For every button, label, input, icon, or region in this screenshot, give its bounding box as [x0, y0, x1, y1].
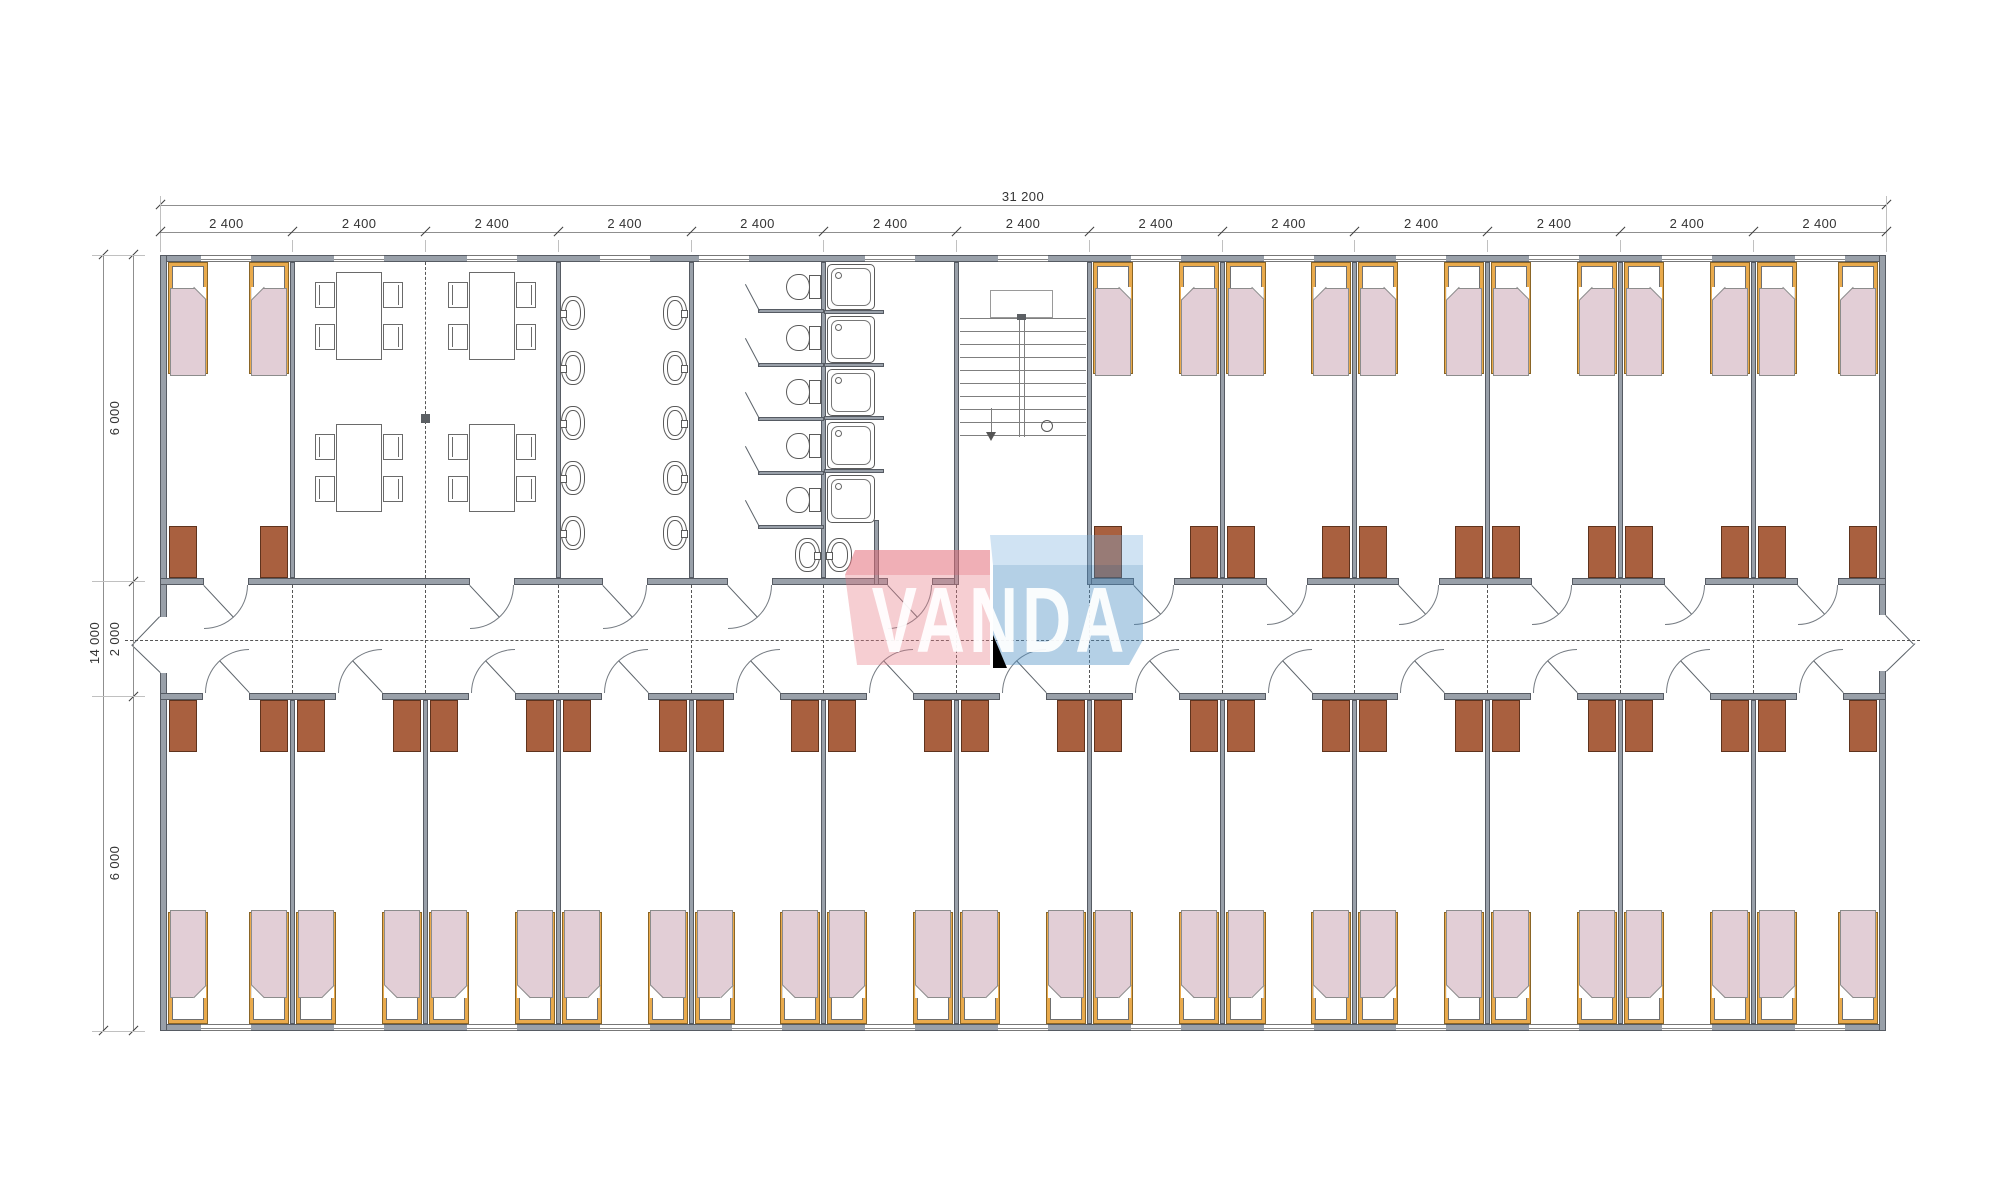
axis-line: [292, 585, 293, 693]
extension-line: [92, 255, 145, 256]
door-swing-arc: [1533, 649, 1577, 693]
bed-blanket: [1181, 288, 1217, 376]
door-swing-arc: [728, 585, 772, 629]
wardrobe: [1758, 526, 1786, 578]
wall: [758, 471, 824, 475]
door-leaf: [131, 644, 160, 673]
chair: [448, 324, 468, 350]
wall: [821, 700, 826, 1024]
dim-bay-label: 2 400: [1355, 217, 1488, 231]
axis-line: [1753, 585, 1754, 693]
window: [201, 1024, 251, 1031]
chair: [448, 434, 468, 460]
wall: [1444, 693, 1531, 700]
blanket-fold: [1313, 985, 1326, 998]
window: [1131, 255, 1181, 262]
sink: [795, 538, 820, 572]
blanket-fold: [1251, 985, 1264, 998]
extension-line: [691, 240, 692, 252]
sink: [663, 406, 687, 440]
wardrobe: [1094, 526, 1122, 578]
wall: [874, 520, 879, 585]
stair-divider-cap: [1017, 314, 1026, 320]
wall: [824, 416, 884, 420]
blanket-fold: [852, 985, 865, 998]
wall: [758, 309, 824, 313]
extension-line: [92, 696, 145, 697]
door-swing-arc: [1399, 585, 1439, 625]
wall: [1843, 693, 1886, 700]
bed-blanket: [170, 288, 206, 376]
wall: [1751, 262, 1756, 578]
sink: [561, 516, 585, 550]
bed-pillow: [1714, 996, 1746, 1020]
wall: [824, 363, 884, 367]
wardrobe: [1190, 700, 1218, 752]
bed-pillow: [699, 996, 731, 1020]
blanket-fold: [1048, 985, 1061, 998]
axis-line: [1222, 585, 1223, 693]
wardrobe: [791, 700, 819, 752]
toilet-tank: [809, 434, 821, 458]
axis-line: [691, 585, 692, 693]
extension-line: [1753, 240, 1754, 252]
sink: [561, 351, 585, 385]
toilet-tank: [809, 488, 821, 512]
blanket-fold: [1712, 287, 1725, 300]
axis-line: [956, 585, 957, 693]
door-swing-arc: [205, 649, 249, 693]
door-swing-arc: [338, 649, 382, 693]
wall: [1439, 578, 1532, 585]
door-swing-arc: [736, 649, 780, 693]
wall: [1220, 262, 1225, 578]
bed-pillow: [1448, 996, 1480, 1020]
bed-blanket: [1228, 288, 1264, 376]
window: [1264, 1024, 1314, 1031]
wall: [1751, 700, 1756, 1024]
blanket-fold: [384, 985, 397, 998]
axis-line: [1620, 585, 1621, 693]
stair-step: [960, 370, 1086, 371]
bed-pillow: [300, 996, 332, 1020]
door-swing-arc: [888, 585, 932, 629]
chair: [516, 282, 536, 308]
door-swing-arc: [1134, 585, 1174, 625]
sink: [827, 538, 852, 572]
window: [1131, 1024, 1181, 1031]
blanket-fold: [1313, 287, 1326, 300]
wardrobe: [1492, 700, 1520, 752]
window: [998, 1024, 1048, 1031]
window: [334, 255, 384, 262]
dimension-line: [160, 232, 1886, 233]
window: [600, 255, 650, 262]
window: [334, 1024, 384, 1031]
bed-pillow: [172, 996, 204, 1020]
blanket-fold: [193, 287, 206, 300]
wardrobe: [828, 700, 856, 752]
dimension-line: [103, 255, 104, 1031]
wardrobe: [1721, 700, 1749, 752]
dining-table: [336, 272, 382, 360]
axis-line: [823, 585, 824, 693]
extension-line: [1620, 240, 1621, 252]
wardrobe: [1322, 700, 1350, 752]
wall: [160, 578, 204, 585]
chair: [383, 476, 403, 502]
blanket-fold: [193, 985, 206, 998]
stair-column: [1041, 420, 1053, 432]
bed-pillow: [1315, 996, 1347, 1020]
bed-pillow: [652, 996, 684, 1020]
wardrobe: [1849, 700, 1877, 752]
toilet-tank: [809, 275, 821, 299]
toilet-bowl: [786, 487, 810, 513]
stair-step: [960, 422, 1086, 423]
blanket-fold: [1383, 287, 1396, 300]
chair: [383, 434, 403, 460]
window: [1396, 1024, 1446, 1031]
bed-pillow: [1097, 996, 1129, 1020]
stair-step: [960, 383, 1086, 384]
bed-blanket: [1360, 288, 1396, 376]
window: [699, 255, 749, 262]
shower-tray: [827, 369, 875, 416]
window: [600, 1024, 650, 1031]
bed-pillow: [1842, 996, 1874, 1020]
axis-line: [1487, 585, 1488, 693]
wall: [689, 262, 694, 578]
extension-line: [92, 1031, 145, 1032]
wall: [1572, 578, 1665, 585]
wall: [160, 693, 203, 700]
bed-blanket: [1759, 288, 1795, 376]
blanket-fold: [1251, 287, 1264, 300]
extension-line: [1354, 240, 1355, 252]
door-swing-arc: [204, 585, 248, 629]
door-leaf: [1886, 643, 1915, 672]
bed-pillow: [1050, 996, 1082, 1020]
chair: [516, 434, 536, 460]
wall: [249, 693, 336, 700]
window: [1529, 1024, 1579, 1031]
bed-pillow: [519, 996, 551, 1020]
blanket-fold: [1516, 985, 1529, 998]
blanket-fold: [985, 985, 998, 998]
door-opening: [160, 617, 167, 673]
blanket-fold: [1118, 287, 1131, 300]
blanket-fold: [251, 985, 264, 998]
wardrobe: [393, 700, 421, 752]
wall: [1618, 262, 1623, 578]
chair: [448, 282, 468, 308]
blanket-fold: [1383, 985, 1396, 998]
wall: [1307, 578, 1400, 585]
dim-overall-height: 14 000: [88, 606, 102, 680]
blanket-fold: [1181, 287, 1194, 300]
bed-pillow: [1628, 996, 1660, 1020]
stall-door-leaf: [745, 500, 760, 527]
sink: [561, 461, 585, 495]
bed-pillow: [964, 996, 996, 1020]
stall-door-leaf: [745, 446, 760, 473]
wardrobe: [1057, 700, 1085, 752]
sink: [561, 406, 585, 440]
wardrobe: [1455, 700, 1483, 752]
wardrobe: [260, 526, 288, 578]
wall: [648, 693, 735, 700]
blanket-fold: [915, 985, 928, 998]
door-swing-arc: [1400, 649, 1444, 693]
sink: [561, 296, 585, 330]
wall: [382, 693, 469, 700]
wardrobe: [563, 700, 591, 752]
chair: [383, 282, 403, 308]
wall: [824, 469, 884, 473]
bed-pillow: [1230, 996, 1262, 1020]
wall: [1220, 700, 1225, 1024]
sink: [663, 351, 687, 385]
blanket-fold: [1782, 985, 1795, 998]
blanket-fold: [1840, 287, 1853, 300]
blanket-fold: [1840, 985, 1853, 998]
dim-bay-label: 2 400: [558, 217, 691, 231]
door-swing-arc: [1268, 649, 1312, 693]
toilet-bowl: [786, 325, 810, 351]
chair: [516, 476, 536, 502]
blanket-fold: [1649, 287, 1662, 300]
bed-blanket: [1626, 288, 1662, 376]
window: [865, 255, 915, 262]
extension-line: [823, 240, 824, 252]
wall: [1352, 700, 1357, 1024]
wall: [248, 578, 470, 585]
axis-line: [1089, 585, 1090, 693]
blanket-fold: [720, 985, 733, 998]
wardrobe: [1849, 526, 1877, 578]
window: [467, 255, 517, 262]
wardrobe: [1227, 526, 1255, 578]
door-swing-arc: [1532, 585, 1572, 625]
stair-step: [960, 357, 1086, 358]
shower-tray: [827, 264, 875, 310]
extension-line: [1089, 240, 1090, 252]
wall: [1087, 578, 1134, 585]
wall: [913, 693, 1000, 700]
door-swing-arc: [1002, 649, 1046, 693]
blanket-fold: [587, 985, 600, 998]
axis-line: [558, 585, 559, 693]
chair: [383, 324, 403, 350]
blanket-fold: [454, 985, 467, 998]
door-swing-arc: [1135, 649, 1179, 693]
wall: [647, 578, 728, 585]
chair: [315, 476, 335, 502]
sink: [663, 461, 687, 495]
wall: [556, 700, 561, 1024]
dim-seg-6000-top: 6 000: [108, 381, 122, 455]
wardrobe: [1322, 526, 1350, 578]
wardrobe: [169, 526, 197, 578]
wall: [290, 700, 295, 1024]
bed-pillow: [253, 996, 285, 1020]
wardrobe: [924, 700, 952, 752]
dim-bay-label: 2 400: [1222, 217, 1355, 231]
door-leaf: [131, 616, 160, 645]
stair-step: [960, 435, 1086, 436]
wardrobe: [1359, 700, 1387, 752]
wall: [1174, 578, 1267, 585]
stair-step: [960, 396, 1086, 397]
wardrobe: [1492, 526, 1520, 578]
door-swing-arc: [1666, 649, 1710, 693]
chair: [315, 434, 335, 460]
wall: [758, 417, 824, 421]
wardrobe: [1625, 526, 1653, 578]
blanket-fold: [1446, 287, 1459, 300]
wall: [1087, 262, 1092, 585]
blanket-fold: [321, 985, 334, 998]
dim-bay-label: 2 400: [824, 217, 957, 231]
stall-door-leaf: [745, 284, 760, 311]
wardrobe: [1758, 700, 1786, 752]
axis-line: [425, 585, 426, 693]
bed-blanket: [1446, 288, 1482, 376]
bed-pillow: [566, 996, 598, 1020]
axis-line: [1354, 585, 1355, 693]
wall: [772, 578, 888, 585]
bed-blanket: [1579, 288, 1615, 376]
corridor-axis-line: [125, 640, 1920, 641]
extension-line: [1487, 240, 1488, 252]
bed-pillow: [1761, 996, 1793, 1020]
dimension-line: [133, 255, 134, 1031]
dim-bay-label: 2 400: [1753, 217, 1886, 231]
wardrobe: [260, 700, 288, 752]
wall: [290, 262, 295, 578]
dim-seg-6000-bottom: 6 000: [108, 826, 122, 900]
wardrobe: [1625, 700, 1653, 752]
door-swing-arc: [470, 585, 514, 629]
door-swing-arc: [1665, 585, 1705, 625]
toilet-tank: [809, 380, 821, 404]
wall: [515, 693, 602, 700]
dimension-line: [160, 205, 1886, 206]
wall: [1838, 578, 1886, 585]
toilet-bowl: [786, 433, 810, 459]
shower-tray: [827, 316, 875, 363]
extension-line: [292, 240, 293, 252]
extension-line: [425, 240, 426, 252]
stair-step: [960, 344, 1086, 345]
bed-pillow: [831, 996, 863, 1020]
wardrobe: [696, 700, 724, 752]
stair-divider: [1024, 318, 1025, 437]
window: [732, 1024, 782, 1031]
wall: [1618, 700, 1623, 1024]
bed-blanket: [1712, 288, 1748, 376]
extension-line: [558, 240, 559, 252]
dining-table: [336, 424, 382, 512]
wall: [423, 700, 428, 1024]
dim-bay-label: 2 400: [1488, 217, 1621, 231]
window: [201, 255, 251, 262]
chair: [516, 324, 536, 350]
dim-bay-label: 2 400: [160, 217, 293, 231]
dim-bay-label: 2 400: [293, 217, 426, 231]
window: [1795, 255, 1845, 262]
toilet-bowl: [786, 379, 810, 405]
window: [1662, 1024, 1712, 1031]
wall: [780, 693, 867, 700]
dim-bay-label: 2 400: [1089, 217, 1222, 231]
wardrobe: [961, 700, 989, 752]
bed-pillow: [917, 996, 949, 1020]
wardrobe: [1455, 526, 1483, 578]
dim-bay-label: 2 400: [1620, 217, 1753, 231]
blanket-fold: [251, 287, 264, 300]
dim-overall-width: 31 200: [823, 190, 1223, 204]
column: [421, 414, 430, 423]
blanket-fold: [1579, 287, 1592, 300]
wall: [1352, 262, 1357, 578]
door-swing-arc: [1799, 649, 1843, 693]
door-swing-arc: [603, 585, 647, 629]
window: [1264, 255, 1314, 262]
blanket-fold: [1181, 985, 1194, 998]
wall: [514, 578, 603, 585]
sink: [663, 516, 687, 550]
wardrobe: [1094, 700, 1122, 752]
sink: [663, 296, 687, 330]
floor-plan: 2 4002 4002 4002 4002 4002 4002 4002 400…: [0, 0, 2000, 1200]
dim-bay-label: 2 400: [691, 217, 824, 231]
extension-line: [956, 240, 957, 252]
dining-table: [469, 424, 515, 512]
wall: [1577, 693, 1664, 700]
wall: [1710, 693, 1797, 700]
dim-seg-2000: 2 000: [108, 602, 122, 676]
shower-tray: [827, 422, 875, 469]
wardrobe: [430, 700, 458, 752]
stair-divider: [1019, 318, 1020, 437]
blanket-fold: [1649, 985, 1662, 998]
bed-pillow: [1183, 996, 1215, 1020]
wardrobe: [297, 700, 325, 752]
window: [1396, 255, 1446, 262]
wall: [1485, 700, 1490, 1024]
blanket-fold: [1516, 287, 1529, 300]
bed-pillow: [784, 996, 816, 1020]
bed-pillow: [1495, 996, 1527, 1020]
dim-bay-label: 2 400: [426, 217, 559, 231]
stall-door-leaf: [745, 338, 760, 365]
door-swing-arc: [1267, 585, 1307, 625]
wall: [689, 700, 694, 1024]
extension-line: [92, 581, 145, 582]
wardrobe: [1721, 526, 1749, 578]
wall: [954, 700, 959, 1024]
bed-pillow: [1581, 996, 1613, 1020]
blanket-fold: [1579, 985, 1592, 998]
wall: [758, 525, 824, 529]
blanket-fold: [517, 985, 530, 998]
door-swing-arc: [471, 649, 515, 693]
window: [1662, 255, 1712, 262]
wall: [1179, 693, 1266, 700]
dining-table: [469, 272, 515, 360]
